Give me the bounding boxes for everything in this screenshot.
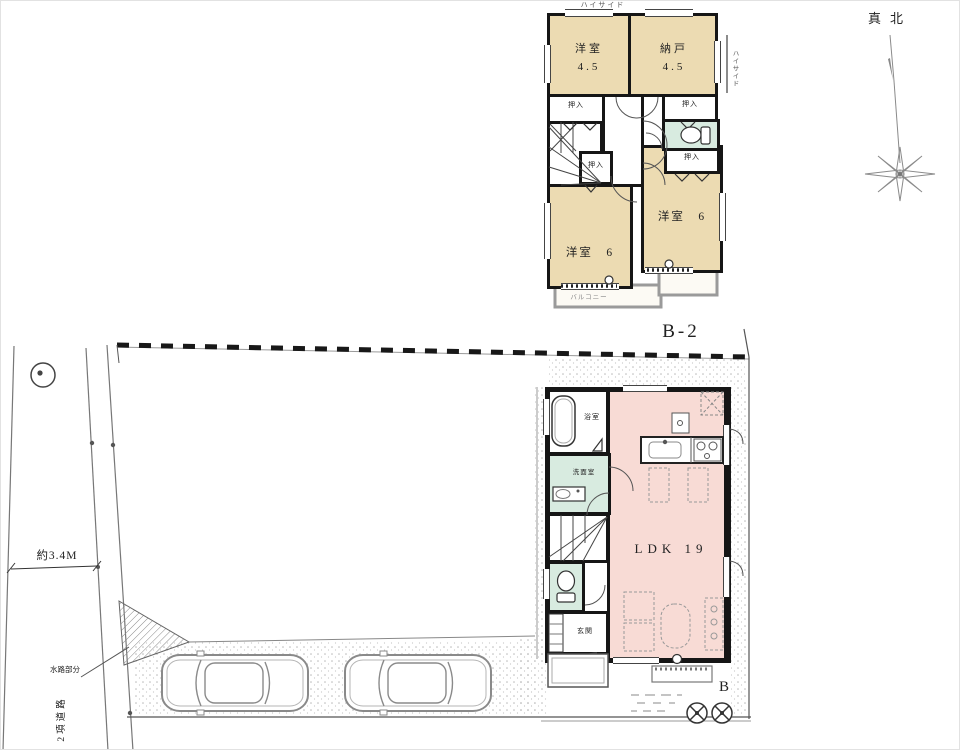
- highside-right-label: ハイサイド: [728, 41, 738, 97]
- room-2f-yoshitsu6-left-label: 洋室 6: [549, 247, 631, 261]
- porch: [548, 654, 608, 687]
- closet-label-1: 押入: [553, 101, 599, 109]
- balcony-label: バルコニー: [563, 294, 615, 302]
- closet-label-4: 押入: [667, 153, 717, 161]
- closet-label-3: 押入: [582, 161, 610, 169]
- bath-label: 浴室: [577, 413, 607, 421]
- floorplan-page: ハイサイド ハイサイド 洋室 4.5 納戸 4.5 押入 押入 押入 押入 洋室…: [0, 0, 960, 750]
- corner-b-label: B: [715, 678, 733, 696]
- plan-b2-label: B-2: [645, 321, 717, 344]
- sliding-window-marks: [561, 260, 691, 286]
- entrance-label: 玄関: [571, 627, 599, 635]
- waterway-label: 水路部分: [43, 665, 87, 674]
- true-north-label: 真北: [859, 11, 921, 27]
- refrigerator-space: [701, 392, 723, 415]
- dimension-ticks: [631, 695, 682, 711]
- kitchen-counter: [641, 413, 723, 463]
- washbasin: [553, 487, 585, 501]
- furniture-layout: [624, 468, 723, 651]
- room-2f-yoshitsu6-right-label: 洋室 6: [641, 211, 723, 225]
- stairs-1f-treads: [549, 515, 607, 561]
- room-name: 洋室: [553, 41, 625, 59]
- terrace-step: [652, 666, 712, 682]
- closet-label-2: 押入: [667, 100, 713, 108]
- road-type-label: 2項道路: [57, 684, 69, 750]
- bathtub: [552, 396, 602, 451]
- highside-top-label: ハイサイド: [571, 1, 635, 9]
- manhole-icons: [687, 703, 732, 723]
- room-size: 4.5: [553, 59, 625, 77]
- room-2f-nando-label: 納戸 4.5: [635, 41, 713, 76]
- washroom-label: 洗面室: [563, 469, 605, 477]
- road-width-label: 約3.4M: [15, 550, 99, 564]
- door-arcs-2f: [611, 97, 667, 202]
- toilet-1f-fixture: [557, 571, 575, 602]
- toilet-2f-fixture: [681, 127, 710, 144]
- detail-linework: [1, 1, 960, 750]
- room-name: 納戸: [635, 41, 713, 59]
- window-swing-marks: [730, 429, 743, 576]
- door-knob: [673, 655, 682, 664]
- shoe-cabinet: [549, 614, 563, 652]
- ldk-label: LDK 19: [621, 541, 721, 557]
- room-size: 4.5: [635, 59, 713, 77]
- stairs-2f-treads: [549, 122, 601, 185]
- room-2f-yoshitsu45-label: 洋室 4.5: [553, 41, 625, 76]
